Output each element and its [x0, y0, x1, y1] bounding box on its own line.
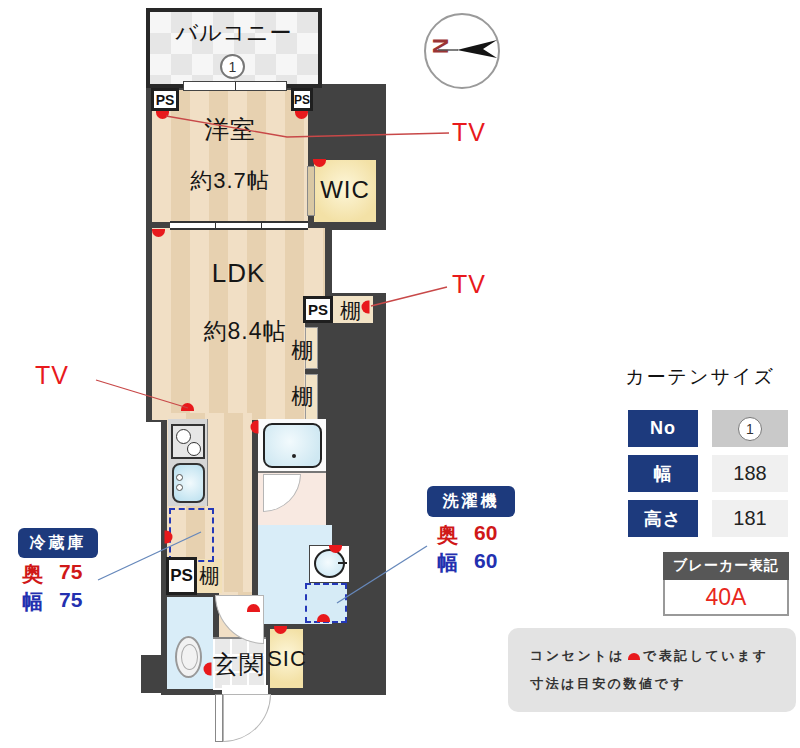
curtain-number-marker: 1 [738, 417, 762, 441]
fridge-space [169, 508, 214, 562]
curtain-row-label: 高さ [628, 500, 698, 537]
dim-label: 奥 [437, 521, 458, 549]
kitchen-sink [172, 463, 205, 503]
floor-plan-page: { "plan": { "balcony": {"label": "バルコニー"… [0, 0, 800, 748]
dim-label: 幅 [437, 549, 458, 577]
washer-depth-row: 奥 60 [437, 521, 497, 549]
wic-label: WIC [314, 176, 376, 204]
vanity-unit [309, 545, 350, 583]
ps-box-kitchen: PS [166, 557, 197, 595]
outlet-icon [247, 604, 260, 612]
yoshitsu-name: 洋室 [152, 113, 308, 146]
balcony-window [183, 81, 287, 91]
dim-value: 60 [474, 549, 497, 577]
burner-icon [176, 429, 191, 444]
wall-stub-bottom-left [141, 655, 167, 693]
curtain-row-value: 1 [712, 410, 788, 447]
outlet-icon [362, 301, 370, 314]
curtain-row-value: 181 [712, 500, 788, 537]
shelf-label-1: 棚 [288, 336, 318, 366]
fridge-callout-title: 冷蔵庫 [18, 528, 98, 558]
shelf-label-kitchen: 棚 [196, 563, 223, 590]
breaker-box: ブレーカー表記 40A [663, 552, 789, 616]
dim-label: 奥 [22, 560, 43, 588]
drain-icon [292, 454, 296, 458]
sliding-door [170, 221, 308, 230]
ps-box-top-right: PS [291, 88, 313, 111]
breaker-value: 40A [663, 580, 789, 616]
note-line-2: 寸法は目安の数値です [530, 670, 796, 698]
faucet-icon [176, 484, 183, 491]
burner-icon [187, 442, 201, 456]
faucet-icon [176, 474, 183, 481]
fridge-depth-row: 奥 75 [22, 560, 82, 588]
tv-label-1: TV [452, 118, 486, 147]
outlet-icon [251, 421, 259, 434]
basin-handle-icon [338, 562, 347, 564]
curtain-row-label: No [628, 410, 698, 447]
outlet-legend-icon [628, 653, 640, 660]
toilet-bowl-icon [181, 644, 198, 670]
dim-label: 幅 [22, 588, 43, 616]
balcony-number-marker: 1 [220, 54, 245, 79]
sliding-door-divider [215, 223, 216, 228]
compass-arrow-icon [424, 13, 500, 89]
dim-value: 60 [474, 521, 497, 549]
bathtub [263, 423, 322, 468]
outlet-icon [317, 614, 330, 622]
breaker-header: ブレーカー表記 [663, 552, 789, 580]
window-divider [235, 82, 236, 90]
compass: N [424, 13, 500, 89]
stove [171, 424, 205, 459]
curtain-row-value: 188 [712, 455, 788, 492]
fridge-width-row: 幅 75 [22, 588, 82, 616]
sic-label: SIC [262, 646, 312, 672]
tv-label-3: TV [35, 361, 69, 390]
curtain-row-label: 幅 [628, 455, 698, 492]
washer-width-row: 幅 60 [437, 549, 497, 577]
legend-note: コンセントはで表記しています 寸法は目安の数値です [508, 628, 796, 712]
outlet-icon [204, 663, 212, 676]
washer-callout-title: 洗濯機 [427, 486, 515, 517]
entrance-door-leaf [215, 694, 223, 742]
curtain-table-title: カーテンサイズ [600, 364, 800, 390]
dim-value: 75 [59, 588, 82, 616]
toilet-icon [175, 636, 202, 678]
outlet-icon [181, 403, 194, 411]
entrance-door-arc [223, 694, 271, 742]
ps-box-top-left: PS [151, 88, 179, 111]
shelf-label-2: 棚 [288, 382, 318, 412]
ldk-name: LDK [152, 258, 325, 289]
dim-value: 75 [59, 560, 82, 588]
note-line-1: コンセントはで表記しています [530, 642, 796, 670]
balcony-label: バルコニー [146, 18, 322, 48]
tv-label-2: TV [452, 270, 486, 299]
sliding-door-divider [261, 223, 262, 228]
yoshitsu-size: 約3.7帖 [152, 166, 308, 196]
